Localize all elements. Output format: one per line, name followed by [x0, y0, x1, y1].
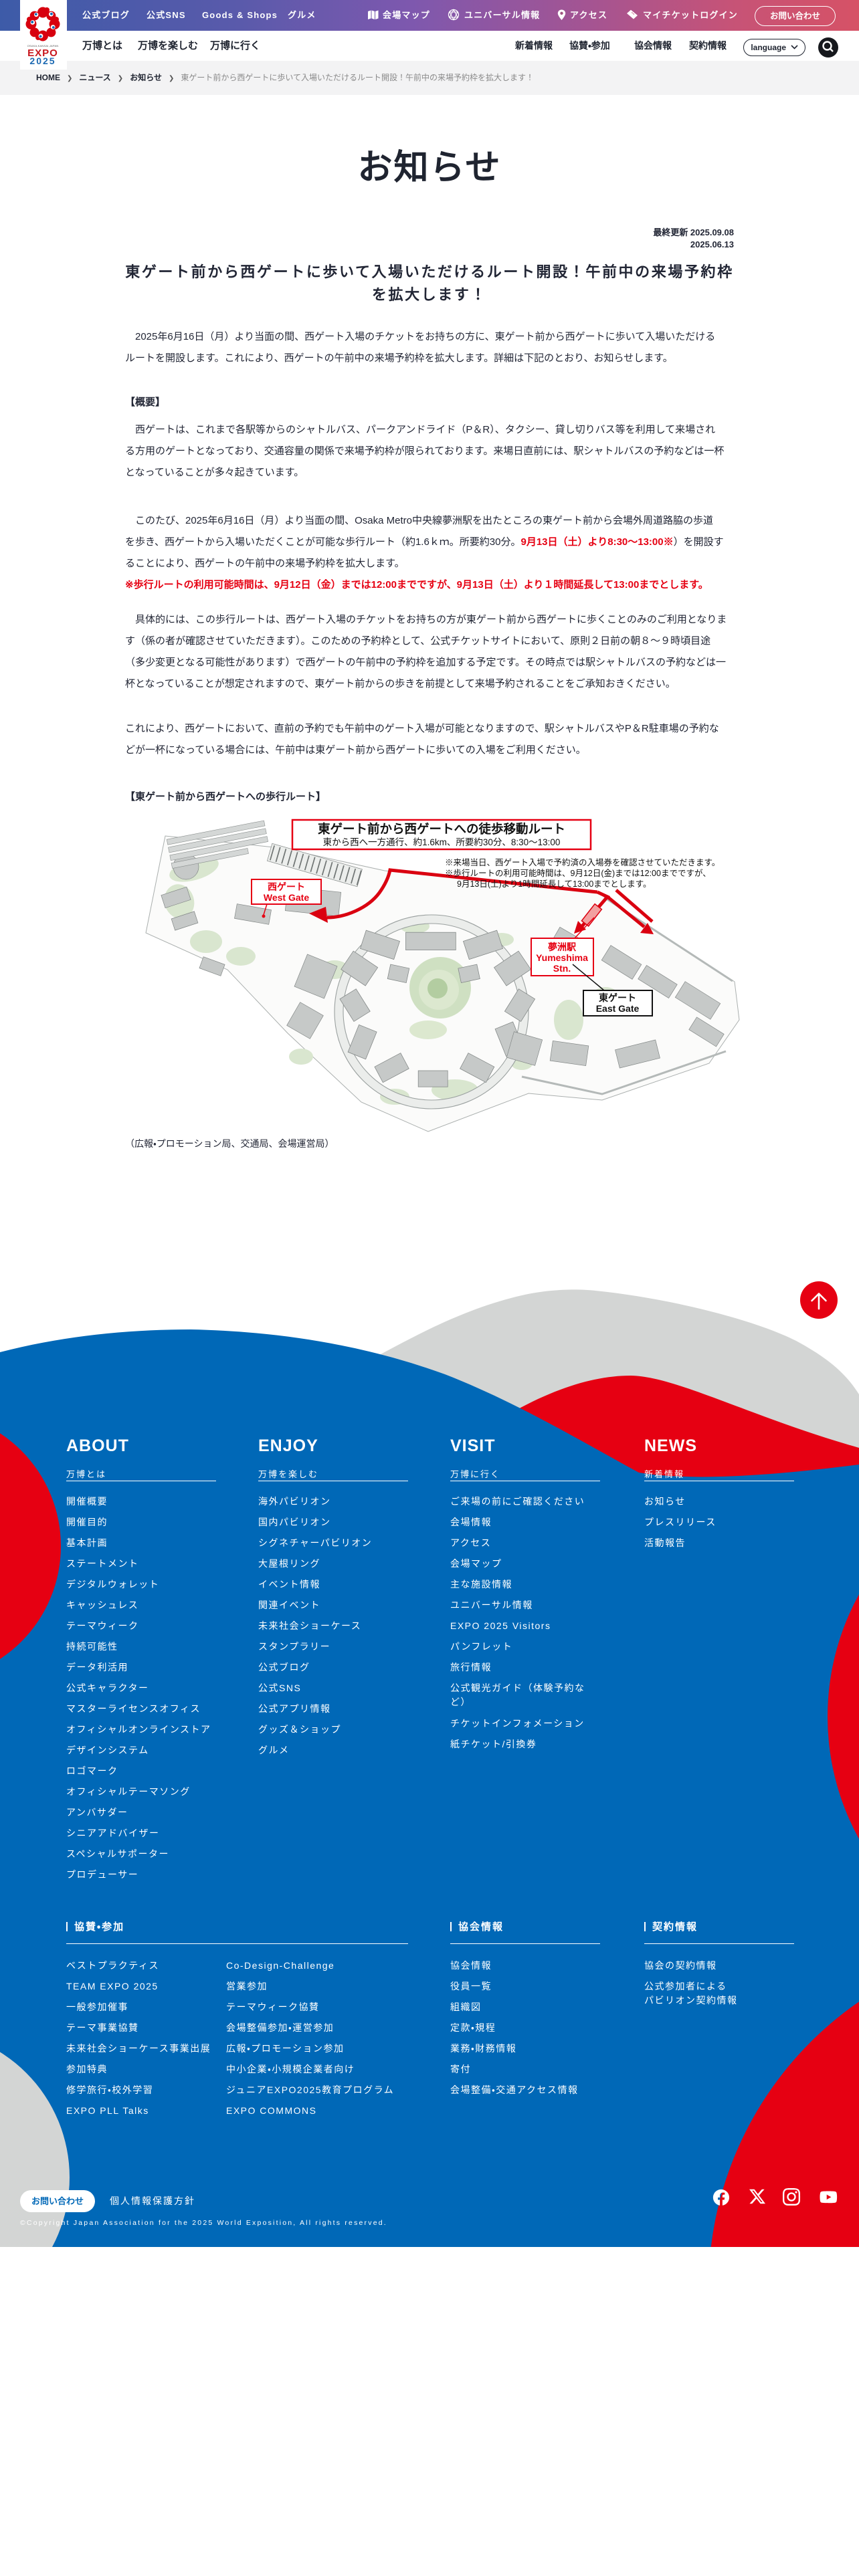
svg-text:West Gate: West Gate [264, 892, 309, 903]
svg-text:※来場当日、西ゲート入場で予約済の入場券を確認させていただき: ※来場当日、西ゲート入場で予約済の入場券を確認させていただきます。 [445, 857, 720, 867]
svg-text:東ゲート前から西ゲートへの徒歩移動ルート: 東ゲート前から西ゲートへの徒歩移動ルート [318, 822, 565, 836]
svg-text:夢洲駅: 夢洲駅 [548, 942, 577, 952]
svg-text:9月13日(土)より1時間延長して13:00までとします。: 9月13日(土)より1時間延長して13:00までとします。 [457, 879, 652, 889]
svg-text:Stn.: Stn. [553, 963, 571, 974]
svg-text:東から西へ一方通行、約1.6km、所要約30分、8:30〜1: 東から西へ一方通行、約1.6km、所要約30分、8:30〜13:00 [323, 837, 561, 847]
svg-text:East Gate: East Gate [596, 1003, 640, 1014]
svg-text:Yumeshima: Yumeshima [536, 952, 588, 963]
svg-text:※歩行ルートの利用可能時間は、9月12日(金)までは12:0: ※歩行ルートの利用可能時間は、9月12日(金)までは12:00までですが、 [445, 868, 711, 878]
svg-text:西ゲート: 西ゲート [268, 881, 305, 892]
svg-text:東ゲート: 東ゲート [599, 992, 636, 1003]
svg-text:2025: 2025 [29, 56, 56, 66]
